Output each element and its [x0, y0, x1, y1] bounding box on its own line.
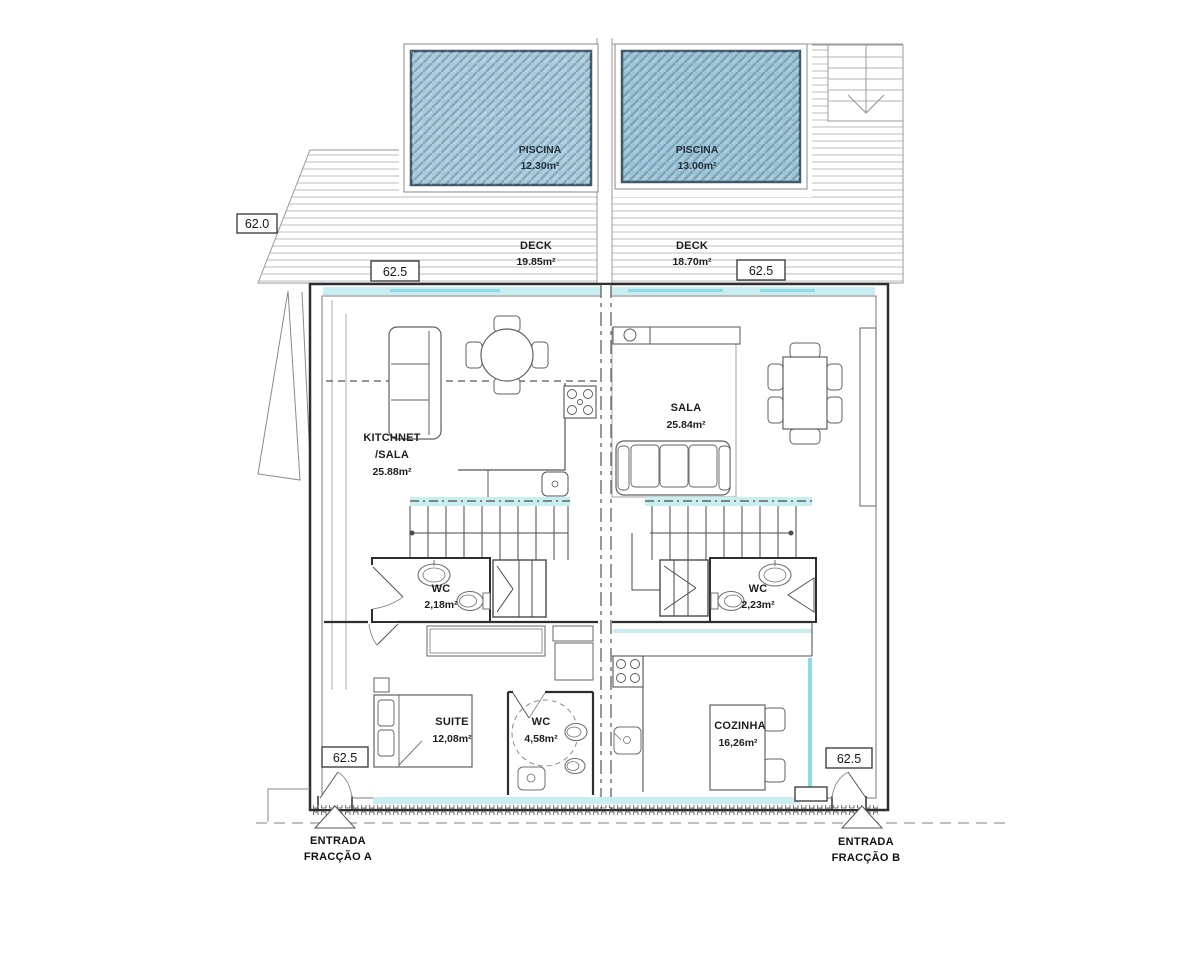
pool-b-area: 13.00m²: [677, 160, 717, 172]
stairs-b-lower-flight: [660, 560, 708, 616]
suite-area: 12,08m²: [432, 733, 472, 745]
washbasin-suite: [518, 767, 545, 790]
kitchnet-label-1: KITCHNET: [363, 432, 420, 444]
cozinha-area: 16,26m²: [718, 737, 758, 749]
chair: [790, 429, 820, 444]
entrance-a-label-2: FRACÇÃO A: [304, 850, 372, 863]
pool-a: PISCINA 12.30m²: [404, 44, 598, 192]
floor-plan: PISCINA 12.30m² PISCINA 13.00m² DECK 19.…: [0, 0, 1200, 960]
pillow: [378, 700, 394, 726]
suite-wc-label: WC: [532, 716, 551, 728]
suite-label: SUITE: [435, 716, 468, 728]
level-marker-625-entry-a: 62.5: [322, 747, 368, 767]
deck-a-area: 19.85m²: [516, 256, 556, 268]
level-marker-620: 62.0: [237, 214, 277, 233]
wc-b: WC 2,23m²: [710, 558, 816, 622]
chair: [768, 364, 783, 390]
sink-a: [542, 472, 568, 496]
pillow: [378, 730, 394, 756]
svg-text:62.0: 62.0: [245, 217, 269, 231]
glass-band-top-accent-1: [390, 289, 500, 292]
glass-band-top-accent-3: [760, 289, 815, 292]
pool-a-area: 12.30m²: [520, 160, 560, 172]
deck-b-area: 18.70m²: [672, 256, 712, 268]
stove-b: [613, 656, 643, 687]
sink-b: [614, 727, 641, 754]
sala-area: 25.84m²: [666, 419, 706, 431]
party-wall: [601, 285, 611, 809]
cozinha-label: COZINHA: [714, 720, 766, 732]
kitchnet-area: 25.88m²: [372, 466, 412, 478]
suite-wc-area: 4,58m²: [524, 733, 558, 745]
chair: [764, 708, 785, 731]
pool-b: PISCINA 13.00m²: [615, 44, 807, 189]
deck-b-label: DECK: [676, 240, 708, 252]
counter-b: [613, 327, 740, 344]
pool-a-label: PISCINA: [519, 144, 562, 156]
exterior-stair-top-right: [828, 45, 903, 121]
wc-b-area: 2,23m²: [741, 599, 775, 611]
threshold-scallops: [312, 805, 878, 815]
toilet-suite: [565, 724, 587, 741]
glass-band-top-accent-2: [628, 289, 723, 292]
svg-text:62.5: 62.5: [837, 752, 861, 766]
level-marker-625-deck-b: 62.5: [737, 260, 785, 280]
chair: [768, 397, 783, 423]
counter-glass-edge-vert: [808, 658, 812, 792]
svg-text:62.5: 62.5: [383, 265, 407, 279]
bidet-suite: [565, 759, 585, 774]
wc-a-label: WC: [432, 583, 451, 595]
nightstand: [374, 678, 389, 692]
chair: [827, 397, 842, 423]
level-marker-625-deck-a: 62.5: [371, 261, 419, 281]
wc-a-area: 2,18m²: [424, 599, 458, 611]
toilet-b: [711, 592, 744, 611]
pool-b-label: PISCINA: [676, 144, 719, 156]
sala-label: SALA: [671, 402, 702, 414]
entrance-b-label-2: FRACÇÃO B: [832, 851, 901, 864]
wc-b-label: WC: [749, 583, 768, 595]
svg-text:62.5: 62.5: [749, 264, 773, 278]
wall-stub: [795, 787, 827, 801]
chair: [466, 342, 482, 368]
exterior-step-left: [268, 789, 310, 822]
svg-text:62.5: 62.5: [333, 751, 357, 765]
entrance-a-label-1: ENTRADA: [310, 835, 366, 847]
deck-a-label: DECK: [520, 240, 552, 252]
chair: [790, 343, 820, 358]
toilet-a: [457, 592, 490, 611]
stairs-a-lower-flight: [493, 560, 546, 617]
chair: [764, 759, 785, 782]
level-marker-625-entry-b: 62.5: [826, 748, 872, 768]
sofa-b: [616, 441, 730, 495]
counter-glass-edge: [613, 629, 812, 633]
wc-a: WC 2,18m²: [370, 558, 490, 622]
chair: [827, 364, 842, 390]
floor-plan-canvas: PISCINA 12.30m² PISCINA 13.00m² DECK 19.…: [0, 0, 1200, 960]
glass-band-bottom: [373, 797, 800, 804]
kitchnet-label-2: /SALA: [375, 449, 409, 461]
chair: [532, 342, 548, 368]
wall-closet-strip: [860, 328, 876, 506]
entrance-b-label-1: ENTRADA: [838, 836, 894, 848]
stove-a: [564, 386, 596, 418]
sofa-a: [389, 327, 441, 439]
deck-split: [597, 38, 612, 283]
